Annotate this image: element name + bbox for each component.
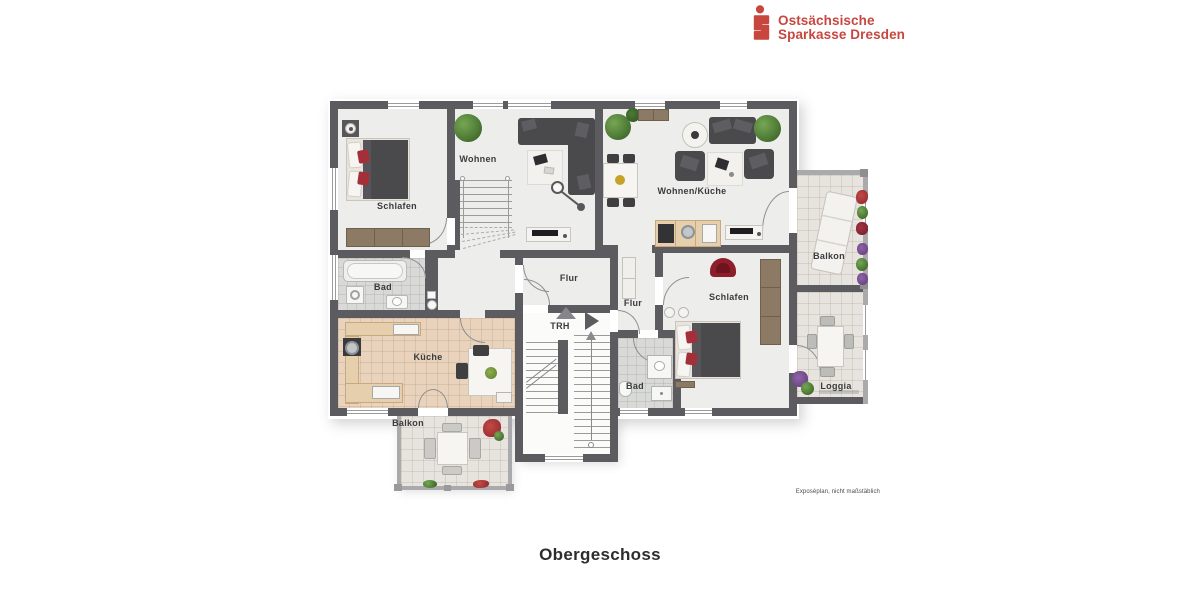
sideboard-wk-line [653, 109, 654, 121]
round-chair-dot [691, 131, 699, 139]
bathroom-sink-basin [392, 297, 402, 306]
window-loggia-1 [863, 305, 868, 335]
wall-bad-kueche-a [330, 310, 460, 318]
washing-machine-door [350, 290, 360, 300]
kitchen-table-plant [485, 367, 497, 379]
bed2-cushion-2 [685, 352, 698, 365]
window-bottom-kueche [347, 408, 388, 416]
logo-line2: Sparkasse Dresden [778, 28, 905, 42]
dresser-line-2 [402, 228, 403, 247]
door-gap-entry-left [515, 265, 523, 293]
kitchen-dishwasher [372, 386, 400, 399]
window-top-2 [473, 101, 503, 109]
wall-flur-schlafen-a [655, 253, 663, 277]
wall-units-divider [595, 101, 603, 258]
balcony-flower-2 [494, 431, 504, 441]
window-top-4 [635, 101, 665, 109]
wall-stairwell-right-b [610, 332, 618, 462]
room-label-balkon-right: Balkon [813, 251, 845, 261]
dining-table-bowl [615, 175, 625, 185]
room-label-kueche: Küche [413, 352, 442, 362]
loggia-chair-2 [844, 334, 854, 349]
stairwell-right-triangle-icon [585, 312, 599, 330]
kitchenette-line-2 [695, 220, 696, 247]
wall-stairwell-left-a [515, 250, 523, 265]
loggia-chair-4 [820, 367, 835, 377]
wohnen-stairs-dash-1 [460, 227, 512, 228]
door-gap-balcony-right [789, 188, 797, 233]
bed2-bench [675, 381, 695, 388]
loggia-table [817, 326, 844, 367]
wohnen-stairs-rail-left [463, 180, 464, 238]
kitchen-chair-1 [456, 363, 468, 379]
balcony-bottom-wall-right [508, 416, 512, 490]
page: Ostsächsische Sparkasse Dresden Wohnen S… [0, 0, 1200, 600]
room-label-bad-right: Bad [626, 381, 644, 391]
loggia-chair-1 [807, 334, 817, 349]
door-gap-bad-right [638, 330, 658, 338]
flower-5 [856, 258, 868, 271]
wall-bad-kueche-b [485, 310, 523, 318]
door-gap-schlafen-right [655, 277, 663, 305]
wall-schlafen-bottom-a [330, 250, 410, 258]
shower-drain-dot [660, 392, 663, 395]
dining-chair-3 [607, 198, 619, 207]
dresser [346, 228, 430, 247]
flower-2 [857, 206, 868, 219]
logo: Ostsächsische Sparkasse Dresden [752, 5, 905, 42]
kitchen-small-unit [496, 392, 512, 403]
accent-chair-inner [716, 263, 730, 273]
wall-right-upper [789, 101, 797, 188]
kitchen-pot [345, 341, 359, 355]
window-bottom-schlafen-right [685, 408, 712, 416]
door-gap-schlafen-left [447, 218, 455, 245]
room-label-wohnen: Wohnen [459, 154, 496, 164]
floor-title: Obergeschoss [0, 545, 1200, 565]
floor-lamp-base [577, 203, 585, 211]
sparkasse-s-icon [752, 5, 771, 42]
tv-board-wk-dot [757, 232, 761, 236]
wohnen-stairs-dot-right [505, 176, 510, 181]
wohnen-stairs-dot-left [460, 176, 465, 181]
window-top-3 [508, 101, 551, 109]
bed-cushion-2 [357, 171, 370, 185]
room-label-wohnen-kueche: Wohnen/Küche [658, 186, 727, 196]
balcony-post-1 [860, 169, 868, 177]
bed-cushion-1 [357, 149, 370, 164]
dining-chair-1 [607, 154, 619, 163]
kitchenette-line-1 [675, 220, 676, 247]
balcony-chair-top [442, 423, 462, 432]
rug-wk-dot [729, 172, 734, 177]
flower-1 [856, 190, 868, 204]
balcony-post-4 [444, 485, 451, 491]
sink-right-basin [654, 361, 665, 371]
sofa-cushion-3 [577, 174, 592, 190]
window-top-5 [720, 101, 747, 109]
room-label-bad-left: Bad [374, 282, 392, 292]
door-gap-stairwell [523, 305, 548, 313]
kitchenette-sink [702, 224, 717, 243]
plant-wk-2 [754, 115, 781, 142]
rug-magazine [544, 166, 555, 174]
kitchen-counter-sink [393, 324, 419, 335]
logo-line1: Ostsächsische [778, 14, 905, 28]
room-label-flur-center: Flur [560, 273, 578, 283]
balcony-flower-4 [473, 480, 489, 488]
window-left-1 [330, 168, 338, 210]
door-gap-bad-left [410, 250, 425, 258]
wall-loggia-top [789, 285, 868, 292]
stairs-direction-line [591, 340, 592, 440]
window-stairwell [545, 454, 583, 462]
wardrobe-right-line-2 [760, 316, 781, 317]
floor-plan-geometry [330, 95, 875, 495]
room-label-loggia: Loggia [820, 381, 851, 391]
plan-disclaimer: Exposéplan, nicht maßstäblich [795, 489, 880, 495]
balcony-chair-right [469, 438, 481, 459]
window-left-2 [330, 255, 338, 300]
nightstand-right-2 [678, 307, 689, 318]
dresser-line-1 [374, 228, 375, 247]
window-loggia-2 [863, 350, 868, 380]
room-label-balkon-bottom: Balkon [392, 418, 424, 428]
door-gap-balcony-bottom [418, 408, 448, 416]
wohnen-stairs-steps [460, 180, 512, 224]
stairs-flight-right [574, 335, 610, 451]
balcony-post-3 [394, 484, 402, 491]
wall-balcony-right-top [797, 170, 863, 175]
room-label-schlafen-right: Schlafen [709, 292, 749, 302]
dining-chair-2 [623, 154, 635, 163]
wardrobe-right-line-1 [760, 287, 781, 288]
flower-3 [856, 222, 868, 235]
balcony-chair-bottom [442, 466, 462, 475]
dining-chair-4 [623, 198, 635, 207]
wall-loggia-bottom [789, 397, 868, 404]
door-gap-entry-right [610, 310, 618, 332]
nightstand-right-1 [664, 307, 675, 318]
window-top-1 [388, 101, 419, 109]
balcony-flower-3 [423, 480, 437, 488]
floor-plan: Wohnen Schlafen Wohnen/Küche Balkon Bad … [330, 95, 875, 495]
plant-wohnen [454, 114, 482, 142]
kitchenette-cooktop [658, 224, 674, 243]
stairs-direction-arrowhead [586, 331, 596, 340]
room-label-schlafen-left: Schlafen [377, 201, 417, 211]
wall-stairwell-right-a [610, 250, 618, 310]
wall-schlafen-bottom-b [425, 250, 447, 258]
balcony-chair-left [424, 438, 436, 459]
window-bottom-bad-right [620, 408, 648, 416]
stairwell-up-triangle-icon [556, 307, 576, 319]
kitchenette-pot [681, 225, 695, 239]
flower-4 [857, 243, 868, 255]
loggia-plant-2 [801, 382, 814, 395]
hall-wardrobe-line [622, 278, 636, 279]
door-gap-loggia [789, 345, 797, 373]
loggia-chair-3 [820, 316, 835, 326]
toilet-bowl [427, 300, 437, 310]
stairs-divider [558, 340, 568, 414]
kitchen-chair-2 [473, 345, 489, 356]
tv-board-dot [563, 234, 567, 238]
bathtub-inner [347, 263, 403, 279]
nightstand-lamp-dot [349, 127, 353, 131]
wall-stairwell-left-b [515, 293, 523, 462]
tv-wk [730, 228, 753, 234]
bed2-cushion-1 [685, 330, 698, 343]
balcony-table [437, 432, 468, 465]
balcony-post-5 [506, 484, 514, 491]
flower-6 [857, 273, 868, 285]
tv-wohnen [532, 230, 558, 236]
balcony-bottom-wall-edge [397, 486, 512, 490]
room-label-flur-right: Flur [624, 298, 642, 308]
stairs-direction-dot [588, 442, 594, 448]
toilet-cistern [427, 291, 436, 299]
wardrobe-right [760, 259, 781, 345]
stairwell-label: TRH [550, 321, 569, 331]
